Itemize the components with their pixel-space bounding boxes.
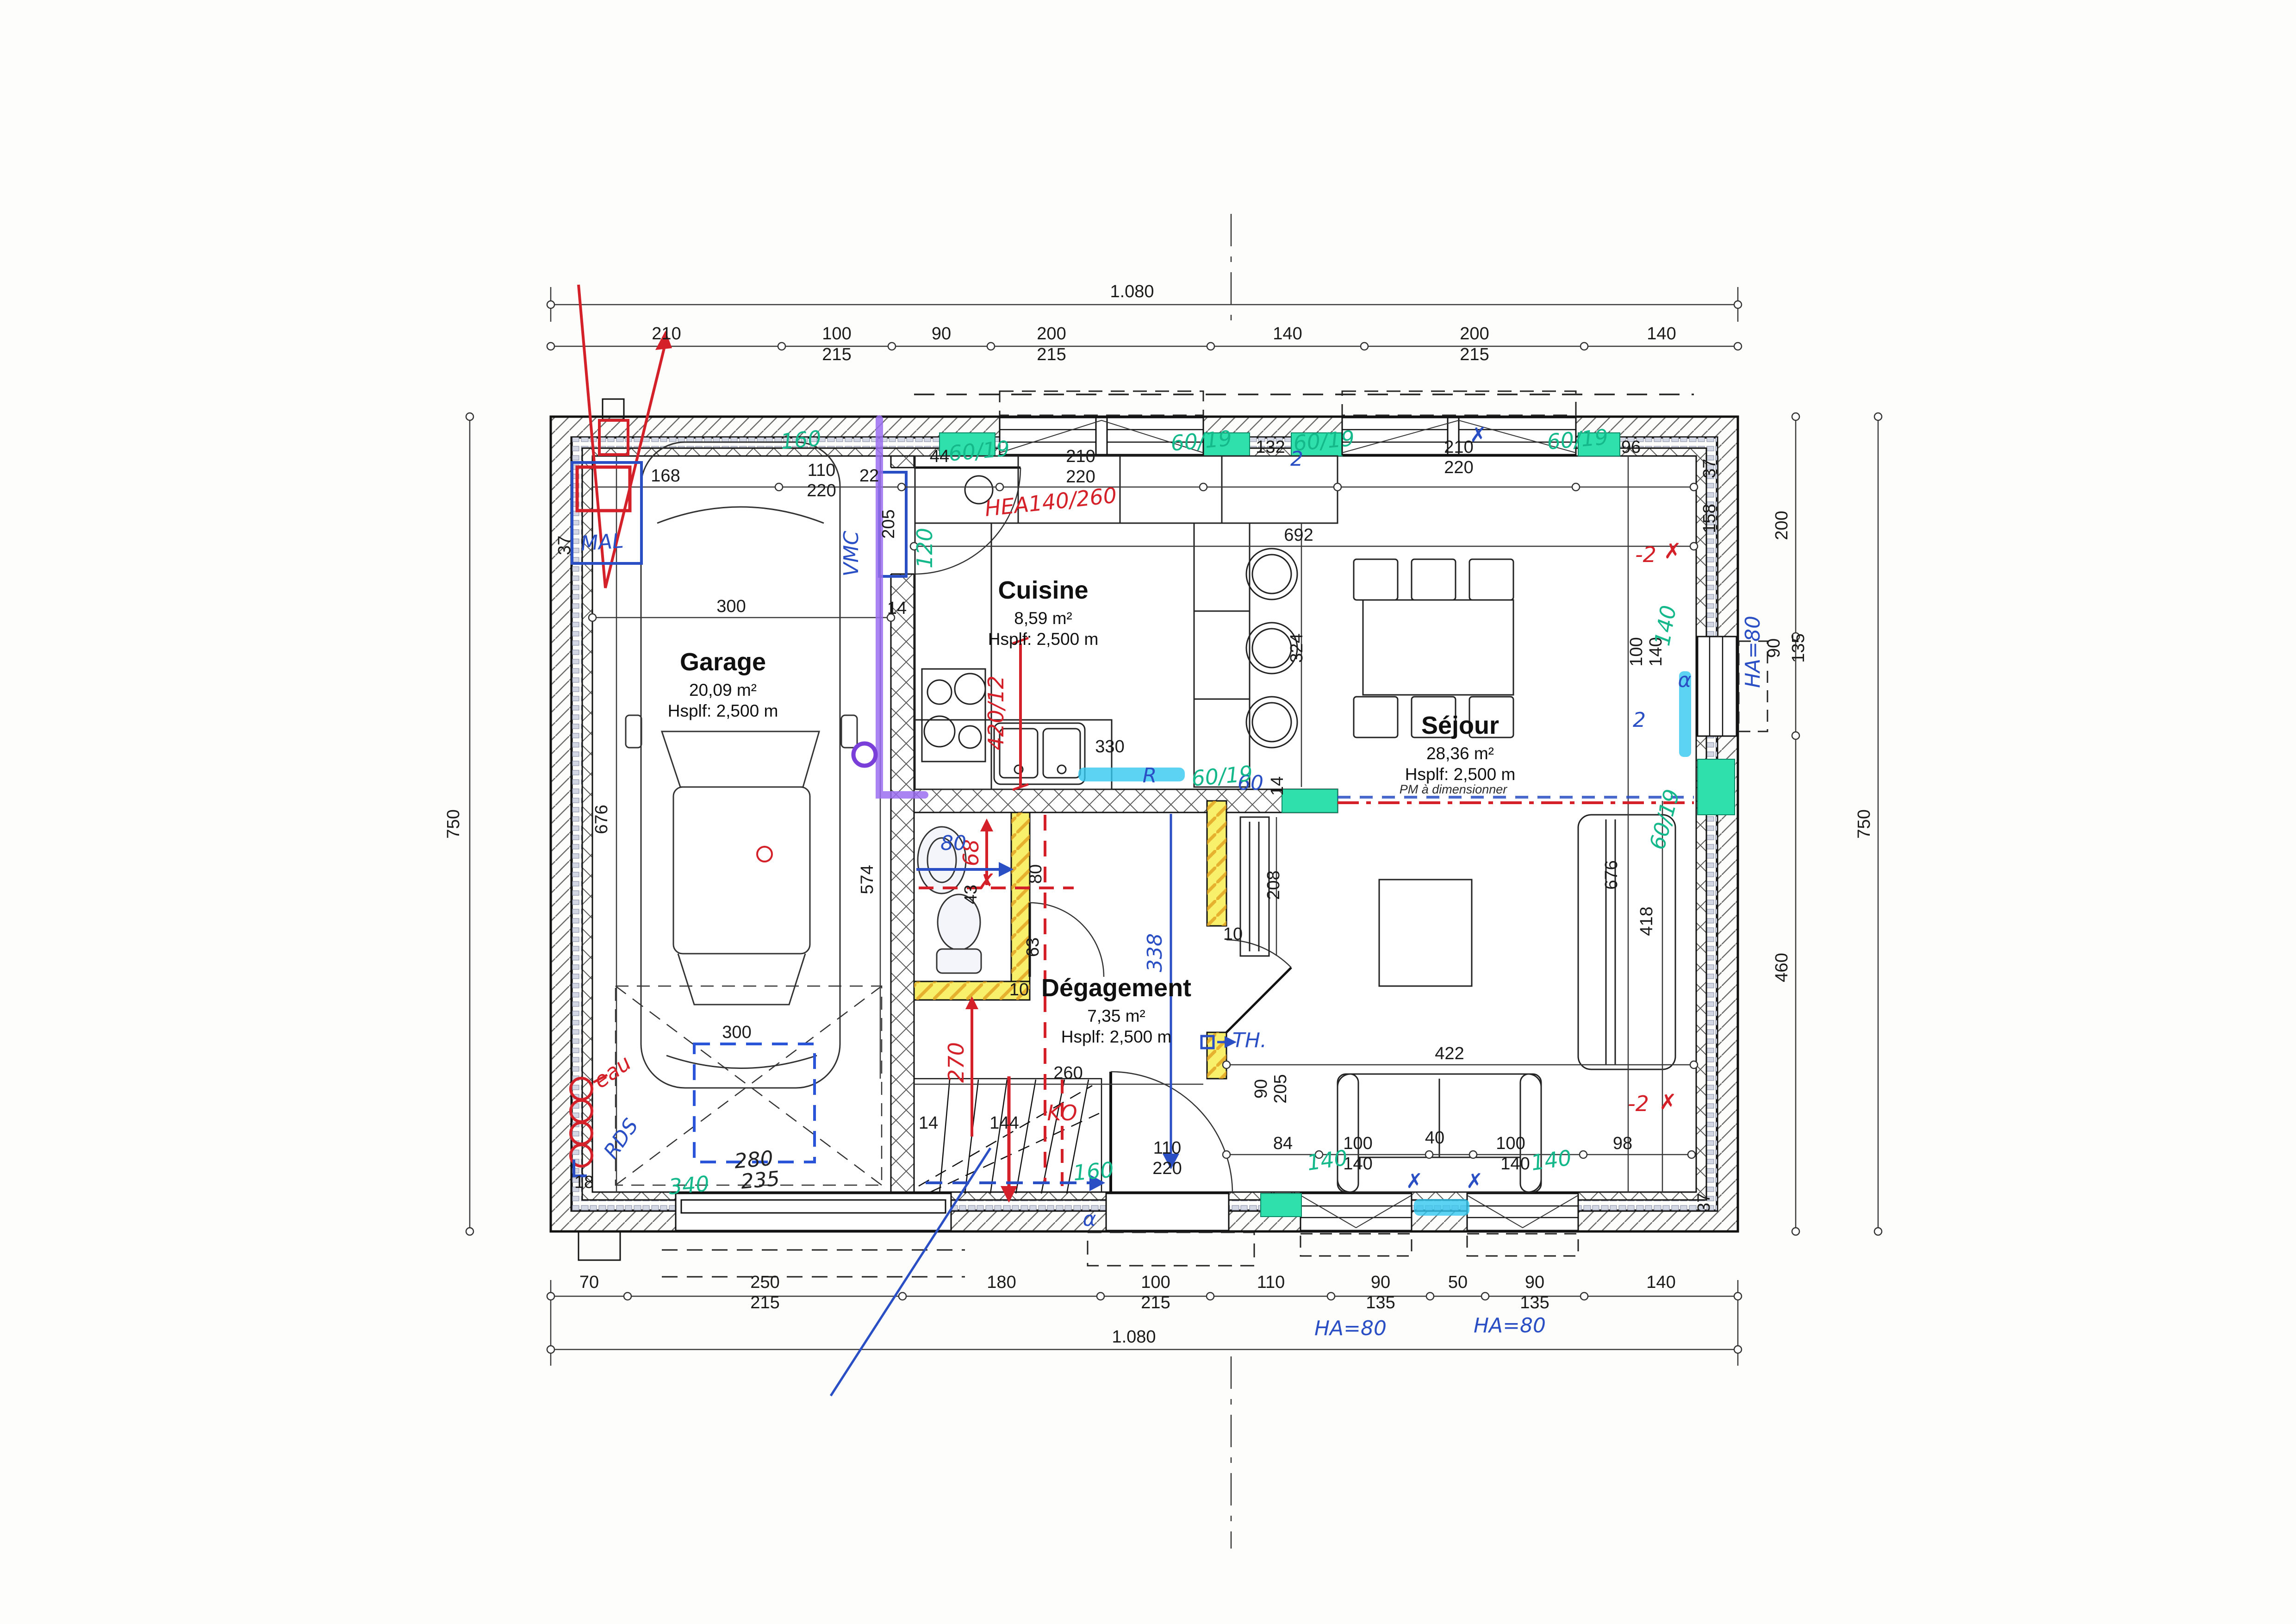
dim-label: 90 <box>932 324 951 344</box>
dim-label: 90 <box>1764 638 1784 658</box>
hand-note-red: 420/12 <box>983 675 1008 750</box>
hand-note-blue: 80 <box>940 831 966 855</box>
dim-label: 676 <box>592 805 611 834</box>
room-area-garage: 20,09 m² <box>689 681 757 700</box>
dim-label: 70 <box>579 1273 599 1292</box>
floor-plan-page: Garage20,09 m²Hsplf: 2,500 mCuisine8,59 … <box>0 0 2296 1624</box>
dim-label: 37 <box>1700 459 1719 478</box>
dim-label: 10 <box>1009 980 1029 999</box>
hand-note-green: 340 <box>668 1171 710 1199</box>
hand-note-blue: 2 <box>1633 708 1646 732</box>
hand-note-blue: HA=80 <box>1741 616 1765 688</box>
dim-label: 208 <box>1264 870 1283 899</box>
hand-note-red: ✗ <box>1664 538 1682 563</box>
dim-label: 215 <box>1141 1293 1170 1312</box>
dim-label: 460 <box>1772 953 1792 982</box>
room-label-cuisine: Cuisine <box>998 576 1088 604</box>
hand-note-green: 60/19 <box>1190 761 1254 791</box>
dim-label: 63 <box>1023 937 1043 957</box>
dim-label: 215 <box>1460 345 1489 364</box>
hand-note-red: KO <box>1047 1100 1077 1125</box>
sejour-bottom-window-2 <box>1467 1193 1578 1256</box>
dim-label: 220 <box>1152 1159 1182 1178</box>
dim-label: 144 <box>989 1113 1019 1133</box>
room-label-garage: Garage <box>680 648 766 676</box>
dim-label: 210 <box>1444 437 1473 457</box>
dim-label: 158 <box>1700 504 1719 533</box>
hand-note-red: -2 <box>1628 1091 1649 1116</box>
dim-label: 14 <box>887 599 907 618</box>
dim-label: 168 <box>651 466 680 486</box>
dim-label: 98 <box>1613 1134 1632 1153</box>
dim-label: 422 <box>1435 1044 1464 1063</box>
hand-note-blue: HA=80 <box>1474 1314 1546 1337</box>
dim-label: 40 <box>1425 1128 1444 1148</box>
dim-label: 574 <box>858 865 877 894</box>
room-label-sejour: Séjour <box>1421 712 1499 739</box>
dim-label: 90 <box>1525 1273 1544 1292</box>
dim-label: 210 <box>1066 447 1095 466</box>
hand-note-ink: 235 <box>740 1167 781 1193</box>
room-ceiling-degagement: Hsplf: 2,500 m <box>1061 1027 1172 1046</box>
dim-label: 215 <box>822 345 851 364</box>
dim-label: 100 <box>822 324 851 344</box>
pm-note: PM à dimensionner <box>1400 782 1508 796</box>
dim-label: 1.080 <box>1110 282 1154 301</box>
hand-note-blue: α <box>1083 1207 1096 1231</box>
room-ceiling-cuisine: Hsplf: 2,500 m <box>988 630 1099 649</box>
dim-label: 10 <box>1223 924 1243 944</box>
room-area-cuisine: 8,59 m² <box>1014 609 1072 628</box>
dim-label: 330 <box>1095 737 1124 756</box>
dim-label: 84 <box>1273 1134 1293 1153</box>
hand-note-green: 60/19 <box>1170 425 1233 456</box>
hand-note-green: 60/19 <box>1546 424 1609 454</box>
dim-label: 140 <box>1647 324 1676 344</box>
hand-note-blue: 338 <box>1143 933 1167 972</box>
room-area-sejour: 28,36 m² <box>1426 744 1494 763</box>
hand-note-red: 270 <box>944 1042 969 1083</box>
hand-note-blue: MAL <box>580 529 624 556</box>
dim-label: 140 <box>1500 1154 1530 1174</box>
dim-label: 14 <box>1268 776 1287 796</box>
dim-label: 205 <box>1271 1074 1290 1103</box>
dim-label: 110 <box>1153 1138 1182 1158</box>
dim-label: 14 <box>919 1113 938 1133</box>
room-area-degagement: 7,35 m² <box>1087 1006 1145 1025</box>
dim-label: 200 <box>1037 324 1066 344</box>
hand-note-red: ✗ <box>1659 1089 1677 1114</box>
floor-plan-svg: Garage20,09 m²Hsplf: 2,500 mCuisine8,59 … <box>0 0 2296 1624</box>
hand-note-blue: α <box>1678 668 1691 692</box>
exterior-walls <box>551 214 1738 1549</box>
dim-label: 37 <box>555 536 574 555</box>
hand-note-blue: TH. <box>1232 1029 1267 1052</box>
dim-label: 37 <box>1694 1193 1714 1212</box>
dim-label: 250 <box>750 1273 779 1292</box>
dim-label: 135 <box>1789 633 1808 662</box>
hand-note-green: 160 <box>1072 1157 1115 1185</box>
dim-label: 676 <box>1602 860 1621 889</box>
dim-label: 750 <box>444 809 463 838</box>
dim-label: 80 <box>1026 864 1045 884</box>
dim-label: 324 <box>1287 633 1307 662</box>
hand-note-blue: R <box>1143 764 1157 787</box>
dim-label: 220 <box>1066 467 1095 487</box>
hand-note-blue: ✗ <box>1470 423 1487 447</box>
hand-note-green: 60/19 <box>1292 425 1356 456</box>
dim-label: 180 <box>987 1273 1016 1292</box>
dim-label: 300 <box>716 597 746 616</box>
hand-note-red: -2 <box>1635 542 1656 567</box>
dim-label: 200 <box>1460 324 1489 344</box>
dim-label: 750 <box>1854 809 1874 838</box>
room-ceiling-sejour: Hsplf: 2,500 m <box>1405 765 1516 784</box>
dim-label: 140 <box>1646 1273 1675 1292</box>
dim-label: 220 <box>807 481 836 500</box>
dim-label: 96 <box>1621 437 1641 457</box>
dim-label: 140 <box>1273 324 1302 344</box>
hand-note-blue: VMC <box>840 531 863 576</box>
hand-note-green: 160 <box>780 425 822 454</box>
dim-label: 135 <box>1366 1293 1395 1312</box>
dim-label: 692 <box>1284 525 1313 545</box>
dim-label: 132 <box>1256 437 1285 457</box>
dim-label: 100 <box>1496 1134 1525 1153</box>
hand-note-blue: ✗ <box>1466 1169 1483 1193</box>
dim-label: 90 <box>1251 1079 1271 1099</box>
dim-label: 100 <box>1141 1273 1170 1292</box>
dim-label: 110 <box>1257 1273 1285 1292</box>
room-ceiling-garage: Hsplf: 2,500 m <box>668 701 778 720</box>
dim-label: 100 <box>1627 637 1646 666</box>
hand-note-green: 120 <box>912 528 937 568</box>
dim-label: 90 <box>1371 1273 1390 1292</box>
hand-note-red: ✗ <box>978 869 996 894</box>
teal-block-bottom <box>1261 1193 1301 1217</box>
room-label-degagement: Dégagement <box>1041 974 1191 1002</box>
dim-label: 205 <box>879 509 898 538</box>
dim-label: 215 <box>750 1293 779 1312</box>
dim-label: 22 <box>859 466 879 486</box>
dim-label: 18 <box>574 1173 594 1192</box>
dim-label: 1.080 <box>1112 1327 1156 1347</box>
dim-label: 50 <box>1448 1273 1468 1292</box>
hand-note-green: 60/19 <box>947 436 1011 466</box>
dim-label: 300 <box>722 1023 751 1042</box>
dim-label: 215 <box>1037 345 1066 364</box>
sejour-bottom-window-1 <box>1300 1193 1412 1256</box>
dim-label: 210 <box>652 324 681 344</box>
dim-label: 418 <box>1637 906 1656 936</box>
dim-label: 135 <box>1520 1293 1549 1312</box>
dim-label: 110 <box>808 461 836 480</box>
dim-label: 100 <box>1343 1134 1372 1153</box>
hand-note-blue: ✗ <box>1406 1169 1423 1193</box>
dim-label: 44 <box>930 447 949 466</box>
dim-label: 220 <box>1444 458 1473 477</box>
dim-label: 260 <box>1053 1063 1083 1083</box>
dim-label: 200 <box>1772 511 1792 540</box>
hand-note-blue: HA=80 <box>1314 1317 1387 1340</box>
